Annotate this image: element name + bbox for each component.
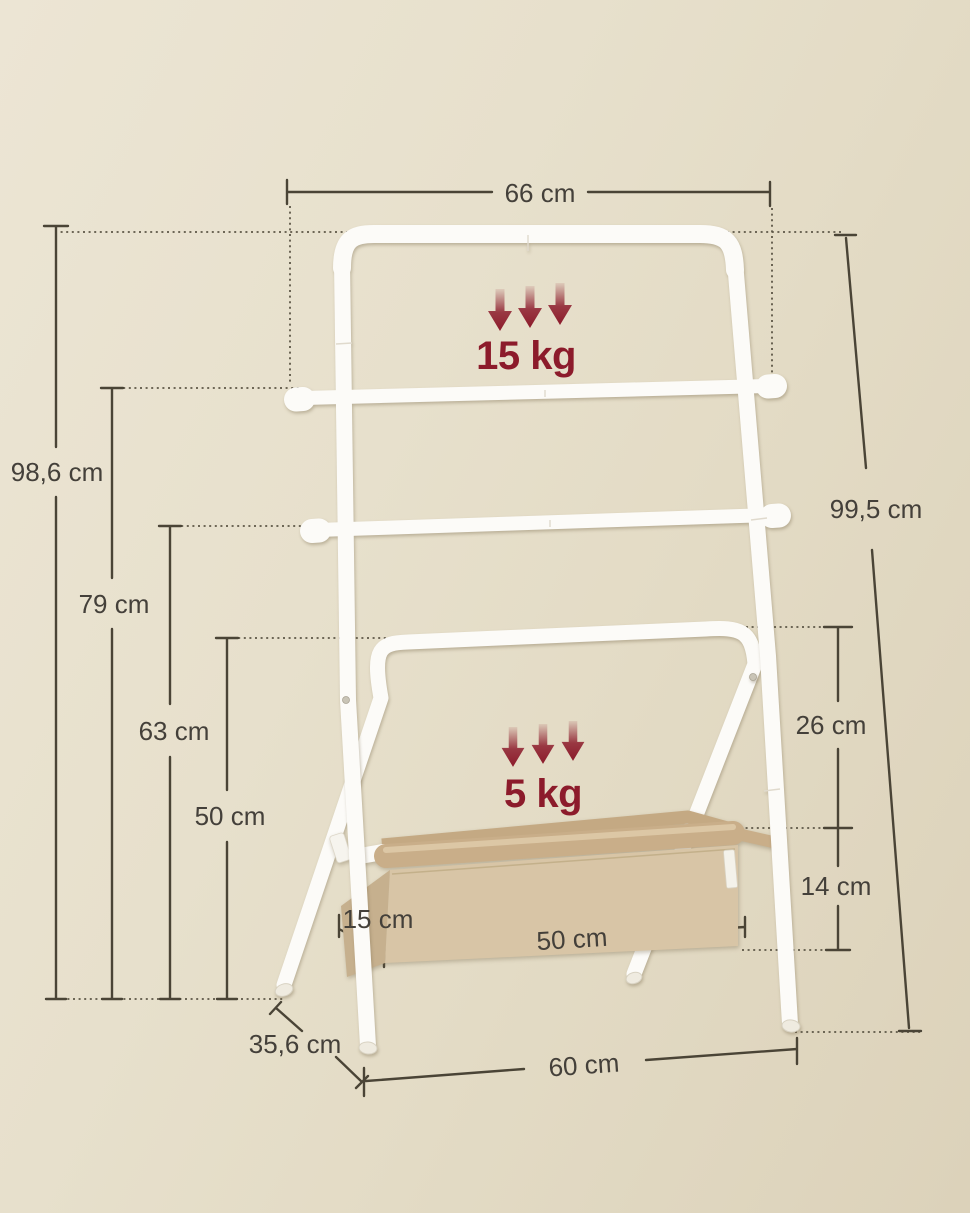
left-hinge-screw [343, 697, 350, 704]
dim-label-basket-depth: 15 cm [343, 904, 414, 934]
right-hinge-screw [750, 674, 757, 681]
load-arrow-icon [488, 289, 512, 331]
dim-line-height-bar3 [159, 526, 181, 999]
dim-label-basket-width: 50 cm [536, 922, 609, 956]
load-arrow-icon [518, 286, 542, 328]
load-arrow-icon [502, 727, 525, 767]
dim-label-basket-height: 14 cm [801, 871, 872, 901]
dim-label-height-left-total: 98,6 cm [11, 457, 104, 487]
top-handle-tube [342, 234, 735, 270]
dim-label-height-right-total: 99,5 cm [830, 494, 923, 524]
dim-label-bar4-to-basket: 26 cm [796, 710, 867, 740]
dim-label-height-bar2: 79 cm [79, 589, 150, 619]
towel-bar-3-left-knob [312, 531, 319, 532]
towel-bar-3 [317, 515, 770, 530]
dim-line-right-gaps [824, 627, 852, 950]
load-label-basket: 5 kg [504, 772, 582, 816]
dim-label-base-depth: 35,6 cm [249, 1029, 342, 1059]
dim-line-height-right-total [835, 235, 921, 1031]
load-arrow-icon [532, 724, 555, 764]
load-label-top-bars: 15 kg [476, 334, 576, 378]
towel-bar-2 [304, 386, 768, 398]
product-dimension-diagram: 15 kg 5 kg 66 cm 98,6 cm 79 cm 63 cm 50 … [0, 0, 970, 1213]
dim-label-height-bar3: 63 cm [139, 716, 210, 746]
towel-bar-2-left-knob [296, 399, 303, 400]
load-annotation-basket: 5 kg [502, 721, 585, 816]
towel-bar-3-right-knob [772, 516, 779, 517]
dim-label-top-width: 66 cm [505, 178, 576, 208]
dim-line-height-bar2 [101, 388, 123, 999]
load-arrow-icon [548, 283, 572, 325]
diagram-canvas: 15 kg 5 kg 66 cm 98,6 cm 79 cm 63 cm 50 … [0, 0, 970, 1213]
load-arrow-icon [562, 721, 585, 761]
dim-line-height-left-total [44, 226, 68, 999]
dim-label-base-width: 60 cm [548, 1048, 621, 1083]
towel-bar-2-right-knob [768, 386, 775, 387]
dim-label-height-bar4: 50 cm [195, 801, 266, 831]
load-annotation-top-bars: 15 kg [476, 283, 576, 378]
